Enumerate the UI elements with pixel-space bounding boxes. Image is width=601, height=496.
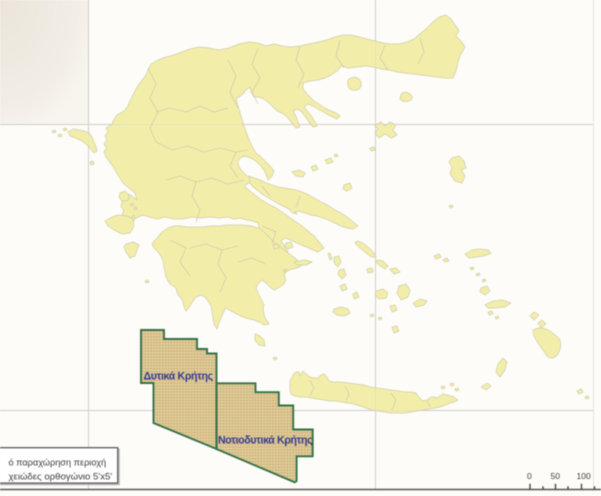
svg-text:Δυτικά Κρήτης: Δυτικά Κρήτης bbox=[144, 371, 214, 383]
svg-text:χειώδες ορθογώνιο 5'x5': χειώδες ορθογώνιο 5'x5' bbox=[9, 472, 113, 483]
svg-text:ό παραχώρηση περιοχή: ό παραχώρηση περιοχή bbox=[9, 458, 107, 468]
svg-text:Νοτιοδυτικά Κρήτης: Νοτιοδυτικά Κρήτης bbox=[218, 435, 313, 447]
svg-text:100: 100 bbox=[577, 471, 591, 481]
svg-text:50: 50 bbox=[551, 471, 561, 481]
svg-text:0: 0 bbox=[527, 471, 532, 481]
